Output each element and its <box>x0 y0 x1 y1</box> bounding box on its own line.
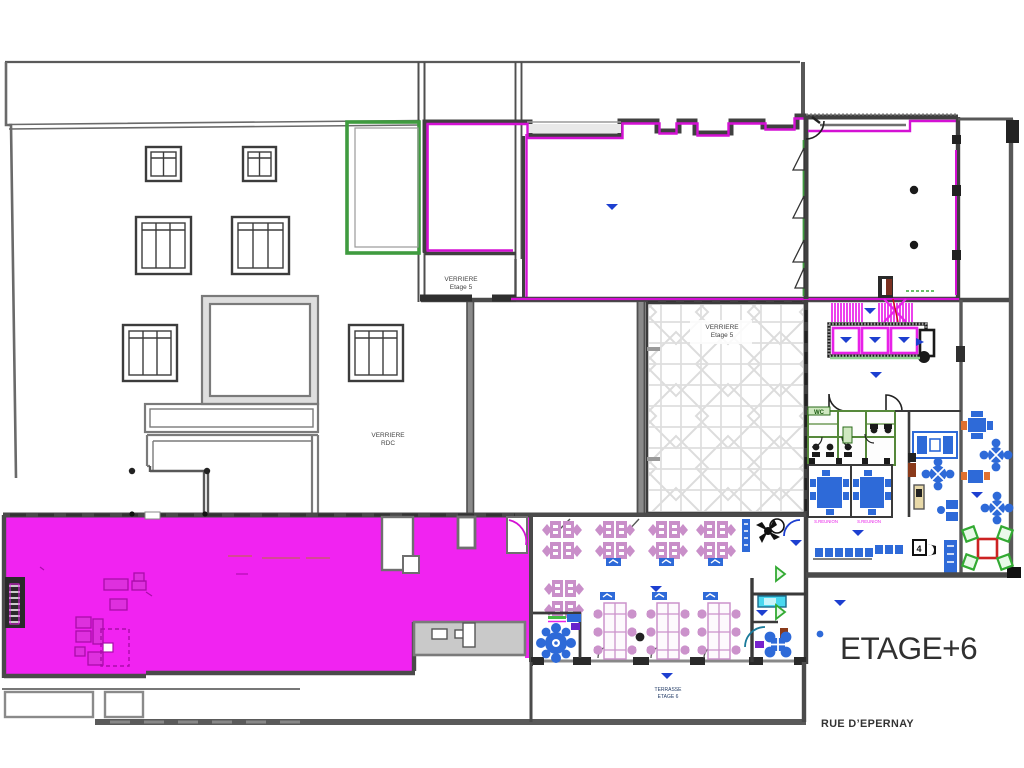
svg-text:ETAGE 6: ETAGE 6 <box>658 694 679 700</box>
svg-text:TERRASSE: TERRASSE <box>655 687 683 693</box>
svg-text:Etage 5: Etage 5 <box>711 332 734 339</box>
svg-text:Etage 5: Etage 5 <box>450 284 473 291</box>
svg-text:S.REUNION: S.REUNION <box>814 519 838 524</box>
svg-text:VERRIERE: VERRIERE <box>444 276 478 283</box>
svg-text:ETAGE+6: ETAGE+6 <box>840 630 977 666</box>
svg-text:S.REUNION: S.REUNION <box>857 519 881 524</box>
svg-text:WC: WC <box>814 410 825 416</box>
svg-text:VERRIERE: VERRIERE <box>371 432 405 439</box>
svg-text:VERRIERE: VERRIERE <box>705 324 739 331</box>
svg-text:RUE D’EPERNAY: RUE D’EPERNAY <box>821 718 914 730</box>
svg-text:4: 4 <box>916 544 921 554</box>
svg-text:RDC: RDC <box>381 440 395 447</box>
